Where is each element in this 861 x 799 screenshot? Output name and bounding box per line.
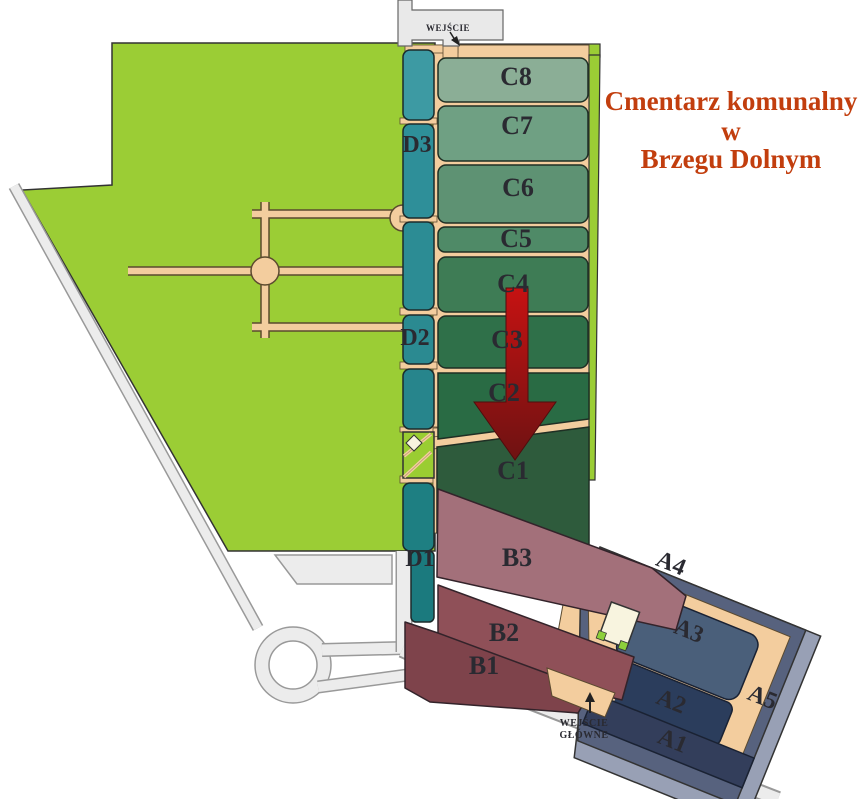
section-c7-label: C7 — [501, 111, 533, 140]
section-b1-label: B1 — [469, 651, 499, 680]
section-d1-label: D1 — [405, 546, 434, 572]
grass-main-area — [22, 43, 435, 551]
d-block-low — [403, 483, 434, 551]
section-d3-label: D3 — [402, 132, 431, 158]
parking-area — [275, 555, 392, 584]
map-canvas: A4 A3 A2 A1 A5 C8 C7 C6 C5 C4 C3 C2 C1 B… — [0, 0, 861, 799]
page-title: Cmentarz komunalny w Brzegu Dolnym — [605, 86, 858, 174]
section-d2-label: D2 — [400, 325, 429, 351]
section-c5-label: C5 — [500, 224, 532, 253]
hatched-square — [403, 432, 434, 478]
section-c1-label: C1 — [497, 456, 529, 485]
d-block-top — [403, 50, 434, 120]
main-entrance-label-line1: WEJŚCIE — [560, 717, 609, 729]
section-c3-label: C3 — [491, 325, 523, 354]
title-line1: Cmentarz komunalny — [605, 86, 858, 116]
main-entrance-label-line2: GŁÓWNE — [559, 729, 608, 741]
title-line3: Brzegu Dolnym — [641, 144, 822, 174]
grass-right-strip — [589, 55, 600, 480]
roundabout-inner — [269, 641, 317, 689]
section-b2-label: B2 — [489, 618, 519, 647]
section-c2-label: C2 — [488, 378, 520, 407]
section-c4-label: C4 — [497, 269, 529, 298]
section-c6-label: C6 — [502, 173, 534, 202]
d-block-mid1 — [403, 222, 434, 310]
entrance-top-label: WEJŚCIE — [426, 23, 470, 33]
d-block-mid2 — [403, 369, 434, 429]
cemetery-map: A4 A3 A2 A1 A5 C8 C7 C6 C5 C4 C3 C2 C1 B… — [0, 0, 861, 799]
title-line2: w — [721, 116, 741, 146]
section-b3-label: B3 — [502, 543, 532, 572]
section-c8-label: C8 — [500, 62, 532, 91]
path-node-circle — [251, 257, 279, 285]
road-ring-east — [322, 648, 404, 650]
